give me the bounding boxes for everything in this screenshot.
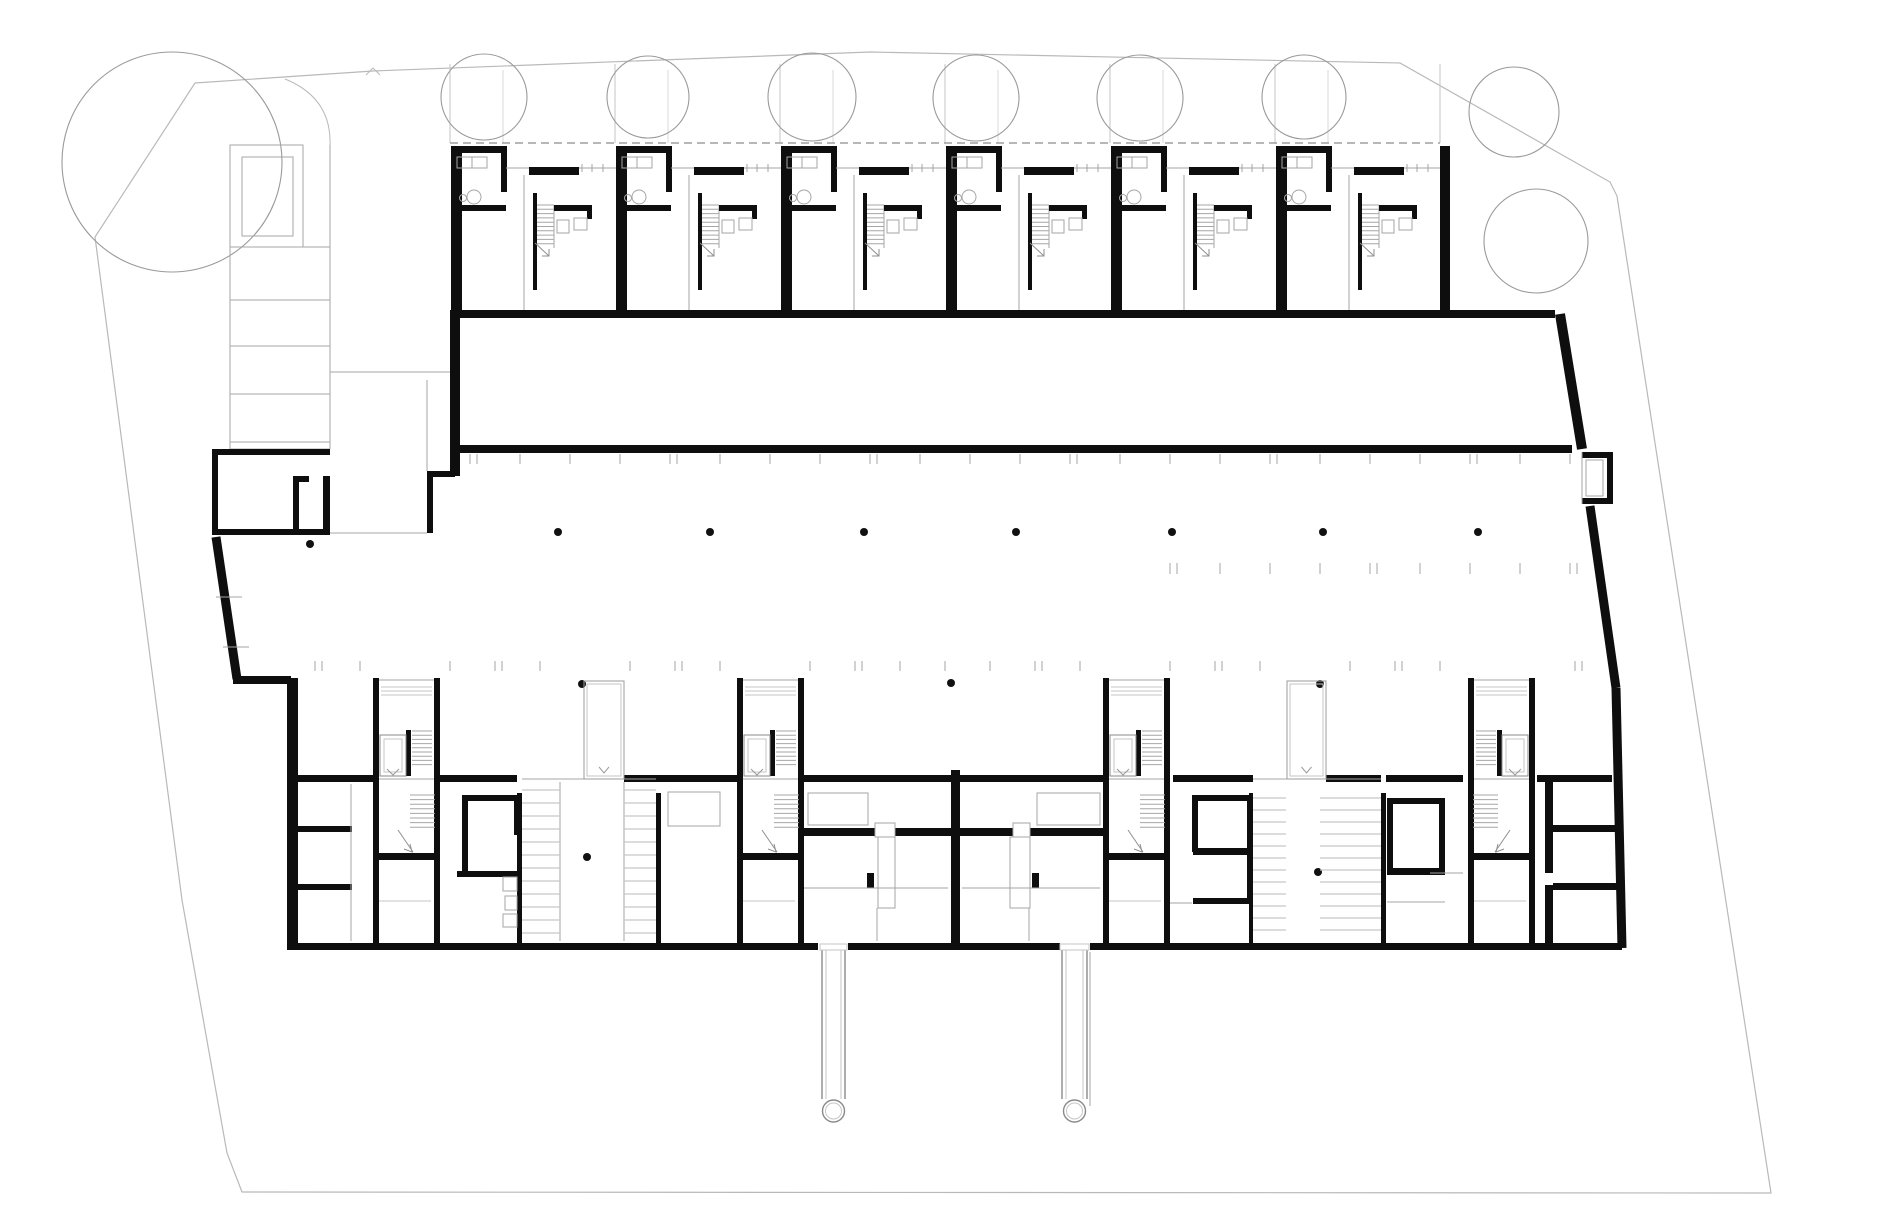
band-left-wall	[287, 678, 298, 950]
slanted-wall	[1616, 688, 1622, 948]
apartment-wall	[290, 826, 352, 832]
furniture-outline	[1010, 837, 1030, 908]
closet-wall	[859, 167, 909, 175]
kitchen-wall	[1049, 205, 1087, 211]
stair-wall	[1358, 193, 1362, 290]
bathroom-wall	[452, 205, 506, 211]
elevator-car	[748, 739, 766, 772]
core-divider-wall	[1136, 730, 1141, 776]
bathroom-wall	[666, 146, 672, 192]
furniture-box	[574, 218, 587, 230]
unit-top-wall	[1276, 146, 1331, 153]
stair-arrow	[865, 243, 879, 256]
toilet-bowl	[797, 190, 811, 204]
toilet-bowl	[467, 190, 481, 204]
core-divider-wall	[406, 730, 411, 776]
furniture-box	[904, 218, 917, 230]
stair-arrow	[1195, 243, 1209, 256]
band-top-wall	[1537, 775, 1612, 782]
stair-wall	[1028, 193, 1032, 290]
bathroom-wall	[617, 205, 671, 211]
toilet-bowl	[962, 190, 976, 204]
elevator-car	[1114, 739, 1132, 772]
apartment-wall	[457, 871, 520, 877]
garden-path-arc	[285, 79, 330, 146]
column-dot	[306, 540, 314, 548]
core-wall	[373, 678, 379, 943]
bathroom-wall	[501, 146, 507, 192]
core-cross-wall	[740, 853, 801, 860]
furniture-box	[1069, 218, 1082, 230]
furniture-outline	[808, 793, 868, 825]
tree-circle	[1484, 189, 1588, 293]
furniture-box	[887, 220, 899, 233]
floor-plan	[0, 0, 1880, 1230]
apartment-wall	[1030, 828, 1103, 836]
storage-room-wall	[212, 449, 330, 455]
furniture-box	[1217, 220, 1229, 233]
end-box-wall	[1607, 452, 1613, 504]
bathroom-wall	[1326, 146, 1332, 192]
band-top-wall	[440, 775, 517, 782]
core-divider-wall	[1497, 730, 1502, 776]
stair-wall	[1193, 193, 1197, 290]
core-wall	[1529, 678, 1535, 943]
column-dot	[554, 528, 562, 536]
unit-top-wall	[1111, 146, 1166, 153]
kitchen-wall-stub	[1082, 211, 1087, 219]
light-well-inner	[587, 684, 621, 776]
furniture-box	[557, 220, 569, 233]
band-bottom-wall	[848, 943, 1060, 950]
apartment-wall	[1192, 795, 1252, 801]
closet-wall	[1024, 167, 1074, 175]
floor-plan-canvas	[0, 0, 1880, 1230]
party-wall	[1111, 146, 1122, 317]
stair-arrow	[535, 243, 549, 256]
unit-top-wall	[946, 146, 1001, 153]
furniture-outline	[1013, 823, 1030, 837]
apartment-wall	[895, 828, 1013, 836]
apartment-wall	[462, 795, 520, 801]
core-cross-wall	[376, 853, 437, 860]
kitchen-wall	[1379, 205, 1417, 211]
toilet-bowl	[632, 190, 646, 204]
furniture-outline	[668, 792, 720, 826]
apartment-wall	[1192, 795, 1198, 852]
bathroom-wall	[1161, 146, 1167, 192]
apartment-wall	[1193, 848, 1250, 855]
core-wall	[737, 678, 743, 943]
light-well-inner	[1290, 684, 1323, 776]
column-dot	[706, 528, 714, 536]
kitchen-wall-stub	[752, 211, 757, 219]
band-top-wall	[1386, 775, 1463, 782]
ramp-enclosure-inner	[242, 157, 293, 236]
core-wall	[1164, 678, 1170, 943]
apartment-wall	[1553, 883, 1617, 890]
stair-wall	[533, 193, 537, 290]
stair-wall	[698, 193, 702, 290]
apartment-wall	[462, 795, 468, 877]
storage-room-wall	[293, 476, 309, 482]
storage-room-wall	[293, 476, 299, 535]
shaft-door-mark	[599, 767, 609, 773]
core-wall	[798, 678, 804, 943]
party-wall	[946, 146, 957, 317]
apartment-wall	[1381, 793, 1386, 945]
stair-arrow	[1030, 243, 1044, 256]
apartment-wall	[803, 828, 875, 836]
column-dot	[1474, 528, 1482, 536]
apartment-wall	[1032, 873, 1039, 888]
furniture-box	[1382, 220, 1394, 233]
apartment-wall	[1439, 798, 1445, 875]
furniture-outline	[875, 823, 895, 837]
furniture-outline	[503, 877, 517, 891]
bathroom-wall	[1277, 205, 1331, 211]
party-wall	[781, 146, 792, 317]
column-dot	[1012, 528, 1020, 536]
kitchen-wall	[554, 205, 592, 211]
apartment-wall	[951, 770, 960, 943]
furniture-outline	[878, 837, 895, 908]
light-well-shaft	[1287, 681, 1326, 779]
unit-top-wall	[616, 146, 671, 153]
furniture-box	[1399, 218, 1412, 230]
furniture-outline	[503, 914, 517, 927]
column-dot	[1319, 528, 1327, 536]
core-cross-wall	[1471, 853, 1532, 860]
parking-edge-wall	[216, 537, 237, 679]
column-dot	[1314, 868, 1322, 876]
apartment-wall	[1387, 798, 1393, 875]
apartment-wall	[1387, 868, 1445, 875]
storage-room-wall	[212, 449, 218, 535]
furniture-box	[1234, 218, 1247, 230]
unit-top-wall	[451, 146, 506, 153]
end-box-wall	[1582, 498, 1613, 504]
furniture-outline	[1037, 793, 1100, 825]
kitchen-wall-stub	[917, 211, 922, 219]
column-dot	[1168, 528, 1176, 536]
apartment-wall	[1553, 825, 1617, 832]
core-wall	[1468, 678, 1474, 943]
tree-circle	[933, 55, 1019, 141]
kitchen-wall	[719, 205, 757, 211]
core-cross-wall	[1106, 853, 1167, 860]
ramp-enclosure	[230, 145, 303, 247]
band-top-wall	[1173, 775, 1253, 782]
tree-circle	[607, 56, 689, 138]
band-bottom-wall	[1090, 943, 1622, 950]
apartment-wall	[1545, 782, 1553, 873]
core-wall	[1103, 678, 1109, 943]
column-dot	[947, 679, 955, 687]
light-well-shaft	[584, 681, 624, 779]
driveway-left-wall	[450, 317, 460, 476]
kitchen-wall-stub	[1412, 211, 1417, 219]
core-divider-wall	[770, 730, 775, 776]
shaft-door-mark	[1302, 767, 1312, 773]
closet-wall	[694, 167, 744, 175]
party-wall	[616, 146, 627, 317]
stair-wall	[863, 193, 867, 290]
band-top-wall	[298, 775, 373, 782]
closet-wall	[1189, 167, 1239, 175]
stair-arrow	[700, 243, 714, 256]
driveway-top-wall	[450, 310, 1555, 318]
apartment-wall	[656, 793, 661, 945]
storage-room-wall	[212, 529, 330, 535]
slanted-wall	[1560, 314, 1582, 449]
tree-circle	[1469, 67, 1559, 157]
kitchen-wall	[1214, 205, 1252, 211]
bathroom-wall	[1112, 205, 1166, 211]
apartment-wall	[1387, 798, 1445, 804]
column-dot	[860, 528, 868, 536]
apartment-wall	[1545, 885, 1553, 945]
unit-top-wall	[781, 146, 836, 153]
bathroom-wall	[996, 146, 1002, 192]
driveway-bottom-wall	[456, 445, 1572, 453]
bathroom-wall	[947, 205, 1001, 211]
apartment-wall	[290, 884, 352, 890]
toilet-bowl	[1292, 190, 1306, 204]
tree-circle	[768, 53, 856, 141]
furniture-box	[739, 218, 752, 230]
end-box-inner	[1586, 460, 1603, 496]
bathroom-wall	[782, 205, 836, 211]
site-boundary	[95, 52, 1771, 1193]
apartment-wall	[517, 793, 522, 945]
stair-arrow	[1360, 243, 1374, 256]
apartment-wall	[867, 873, 874, 888]
townhouse-end-wall	[1440, 146, 1450, 317]
column-dot	[583, 853, 591, 861]
storage-room-wall	[323, 476, 330, 535]
closet-wall	[529, 167, 579, 175]
furniture-outline	[505, 896, 517, 910]
slanted-wall	[1590, 506, 1616, 688]
elevator-car	[384, 739, 402, 772]
furniture-box	[1052, 220, 1064, 233]
kitchen-wall-stub	[1247, 211, 1252, 219]
core-wall	[434, 678, 440, 943]
elevator-car	[1506, 739, 1524, 772]
tube-door-line	[1060, 944, 1089, 950]
party-wall	[1276, 146, 1287, 317]
apartment-wall	[1193, 898, 1250, 904]
storage-room-wall	[427, 477, 433, 533]
parking-edge-wall	[233, 676, 291, 684]
toilet-bowl	[1127, 190, 1141, 204]
tube-door-line	[820, 944, 847, 950]
kitchen-wall	[884, 205, 922, 211]
furniture-box	[722, 220, 734, 233]
kitchen-wall-stub	[587, 211, 592, 219]
party-wall	[451, 146, 462, 317]
closet-wall	[1354, 167, 1404, 175]
bathroom-wall	[831, 146, 837, 192]
band-bottom-wall	[287, 943, 818, 950]
